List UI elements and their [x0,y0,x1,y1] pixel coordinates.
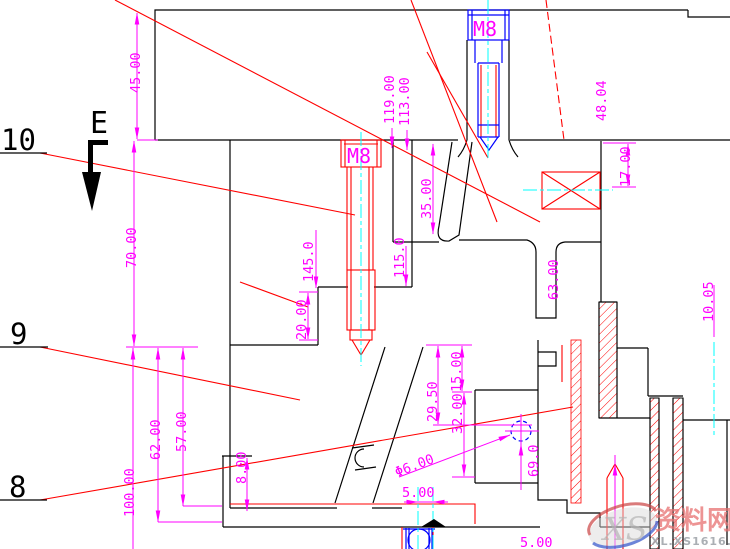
watermark-logo-text: XS [600,510,648,548]
dim-690: 69.0 [526,444,542,477]
part-label-9: 9 [10,317,27,351]
section-label-e: E [90,106,108,141]
part-label-8: 8 [9,470,26,504]
dim-1500: 15.00 [449,351,465,392]
dim-70: 70.00 [124,227,140,268]
dim-57: 57.00 [174,411,190,452]
dim-17: 17.00 [618,146,634,187]
dim-5a: 5.00 [402,485,435,501]
e-arrow-stem [88,145,93,172]
hatch-strip-a [571,340,581,503]
cad-drawing: 45.00 70.00 100.00 62.00 57.00 119.00 11… [0,0,730,549]
dim-62: 62.00 [148,419,164,460]
cad-drawing-canvas: 45.00 70.00 100.00 62.00 57.00 119.00 11… [0,0,730,549]
dim-115: 115.0 [392,237,408,278]
dim-35: 35.00 [419,178,435,219]
dim-145: 145.0 [301,241,317,282]
label-m8-top: M8 [473,17,497,41]
dim-1005: 10.05 [701,281,717,322]
part-label-10: 10 [1,123,36,157]
dim-4804: 48.04 [594,80,610,121]
dim-2950: 29.50 [425,381,441,422]
dim-63: 63.00 [546,259,562,300]
dim-113: 113.00 [397,77,413,126]
hatch-strip-b [599,302,617,418]
dim-3200: 32.00 [450,393,466,434]
label-m8-mid: M8 [347,144,371,168]
dim-45: 45.00 [128,52,144,93]
watermark-site-url: XL.XS1616.COM [651,535,730,548]
dim-20: 20.00 [294,299,310,340]
dim-5b: 5.00 [520,535,553,549]
background [0,0,730,549]
dim-100: 100.00 [122,468,138,517]
watermark-site-name: 资料网 [655,506,730,536]
dim-119: 119.00 [382,75,398,124]
dim-800: 8.00 [234,451,250,484]
